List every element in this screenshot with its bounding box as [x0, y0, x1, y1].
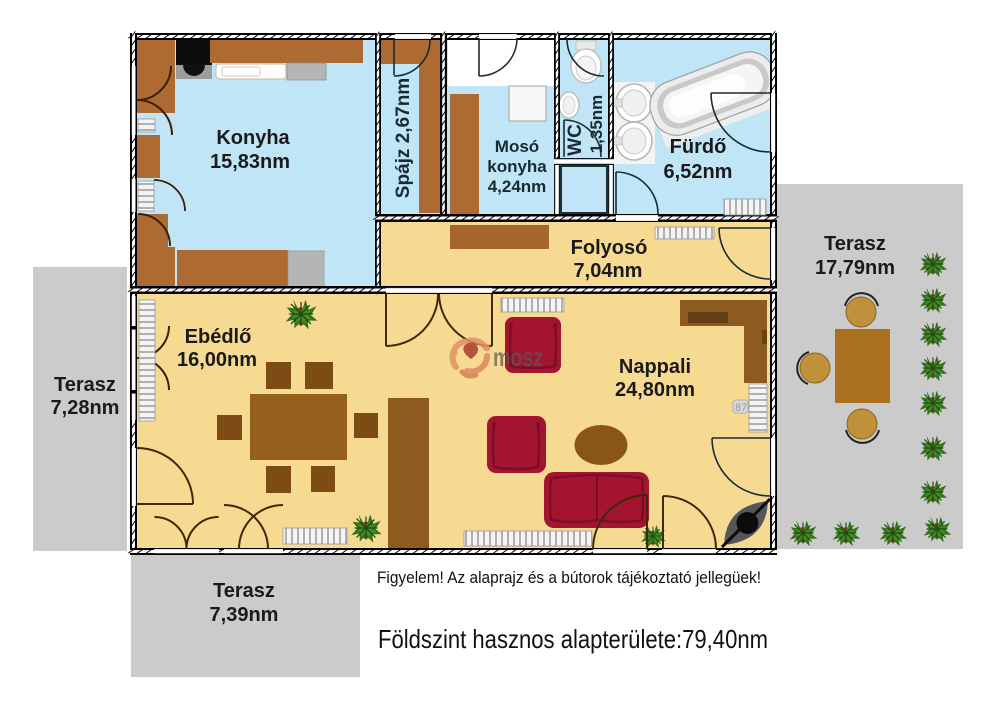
svg-text:6,52nm: 6,52nm	[664, 161, 733, 183]
svg-text:Spájz 2,67nm: Spájz 2,67nm	[393, 78, 414, 198]
svg-text:mosz: mosz	[493, 342, 543, 372]
svg-text:87: 87	[735, 402, 747, 414]
svg-text:7,28nm: 7,28nm	[51, 397, 120, 419]
svg-text:16,00nm: 16,00nm	[177, 349, 257, 371]
svg-text:Terasz: Terasz	[213, 580, 275, 602]
svg-text:24,80nm: 24,80nm	[615, 379, 695, 401]
svg-text:Terasz: Terasz	[824, 233, 886, 255]
svg-text:1,35nm: 1,35nm	[587, 95, 606, 154]
svg-text:Folyosó: Folyosó	[571, 237, 648, 259]
svg-text:Nappali: Nappali	[619, 356, 691, 378]
svg-text:Ebédlő: Ebédlő	[185, 326, 252, 348]
svg-text:15,83nm: 15,83nm	[210, 151, 290, 173]
svg-text:Konyha: Konyha	[216, 127, 290, 149]
svg-text:Fürdő: Fürdő	[670, 136, 727, 158]
svg-text:Földszint hasznos alapterülete: Földszint hasznos alapterülete:79,40nm	[378, 624, 768, 654]
svg-text:Mosó: Mosó	[495, 137, 539, 156]
svg-text:konyha: konyha	[487, 157, 547, 176]
svg-text:7,04nm: 7,04nm	[574, 260, 643, 282]
svg-text:7,39nm: 7,39nm	[210, 604, 279, 626]
svg-text:17,79nm: 17,79nm	[815, 257, 895, 279]
svg-text:Figyelem! Az alaprajz és a bút: Figyelem! Az alaprajz és a bútorok tájék…	[377, 569, 761, 587]
svg-text:Terasz: Terasz	[54, 374, 116, 396]
svg-text:4,24nm: 4,24nm	[488, 177, 547, 196]
svg-text:WC: WC	[565, 124, 586, 156]
